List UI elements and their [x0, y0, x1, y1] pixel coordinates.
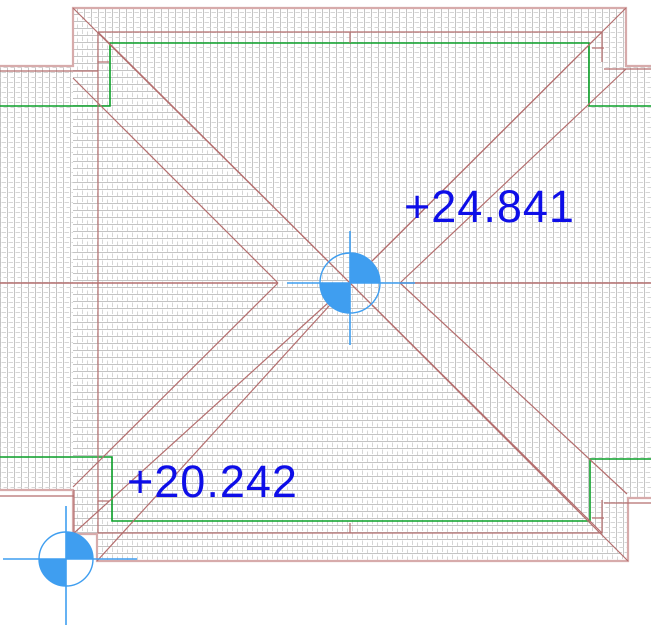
cad-drawing-canvas[interactable]: +24.841 +20.242: [0, 0, 651, 641]
roof-plan-drawing: [0, 0, 651, 641]
elevation-label-lower-roof[interactable]: +20.242: [127, 459, 298, 504]
elevation-label-upper-roof[interactable]: +24.841: [404, 184, 575, 229]
roof-left-wing: [0, 66, 73, 490]
